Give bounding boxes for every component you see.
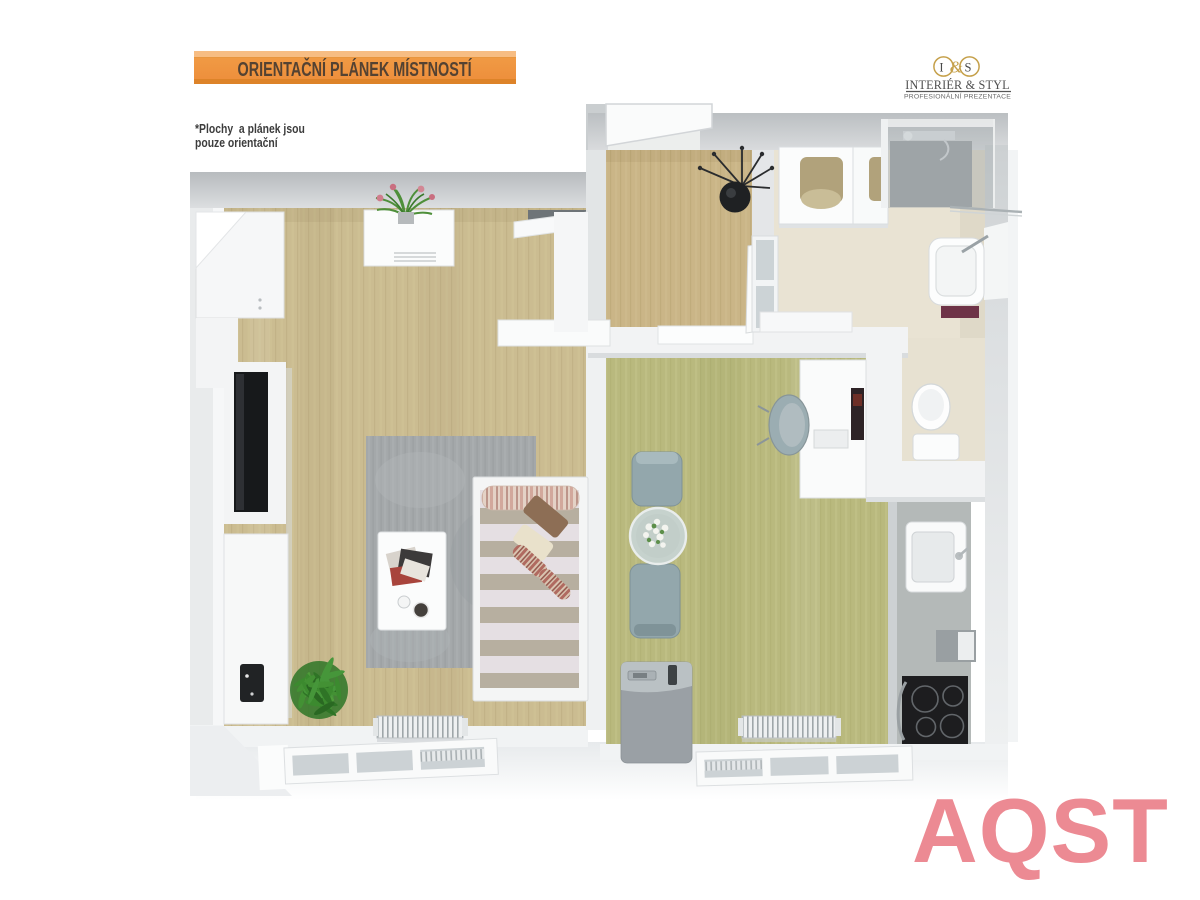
svg-text:PROFESIONÁLNÍ PREZENTACE: PROFESIONÁLNÍ PREZENTACE [904, 92, 1011, 101]
svg-text:I: I [939, 61, 943, 75]
svg-text:&: & [950, 58, 963, 77]
svg-text:S: S [965, 61, 972, 75]
svg-text:INTERIÉR & STYL: INTERIÉR & STYL [905, 78, 1010, 92]
